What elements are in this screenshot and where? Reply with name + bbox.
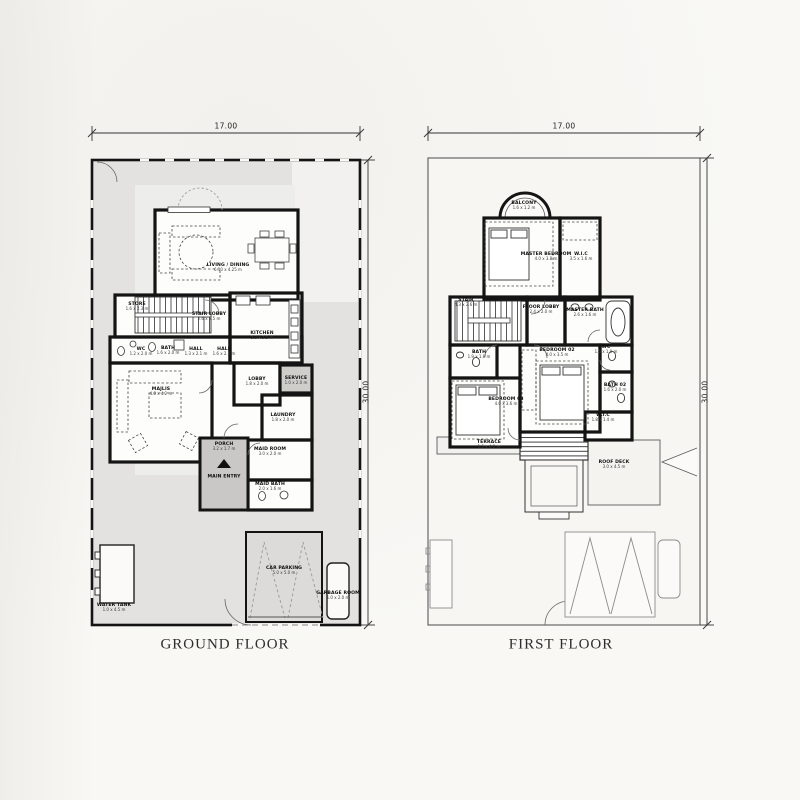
ground-floor-plan — [88, 126, 375, 629]
car-parking — [246, 532, 323, 622]
entry-canopy — [520, 428, 588, 519]
ground-stairs — [135, 297, 211, 333]
ground-width-dimension: 17.00 — [215, 122, 238, 131]
garbage-room — [327, 563, 349, 619]
ground-floor-title: GROUND FLOOR — [160, 637, 289, 654]
first-stairs — [455, 301, 521, 341]
floor-plan-drawing — [0, 0, 800, 800]
first-floor-title: FIRST FLOOR — [509, 637, 614, 654]
ground-depth-dimension: 30.00 — [362, 381, 371, 404]
first-depth-dimension: 30.00 — [701, 381, 710, 404]
first-width-dimension: 17.00 — [553, 122, 576, 131]
first-floor-plan — [424, 126, 714, 629]
ground-porch — [200, 438, 248, 510]
roof-deck — [588, 440, 660, 505]
floor-plan-sheet: 17.00 30.00 17.00 30.00 LIVING / DINING6… — [0, 0, 800, 800]
water-tank — [95, 545, 134, 603]
